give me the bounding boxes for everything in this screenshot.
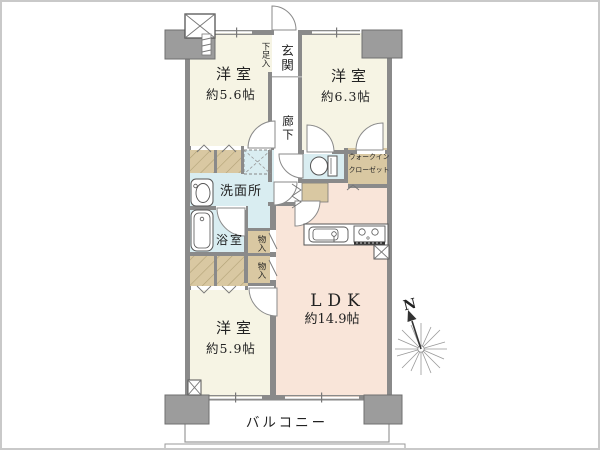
entrance-door-arc [272,6,296,30]
shoe-cabinet-label: 下足入 [258,38,269,72]
bathroom-label: 浴室 [200,234,260,247]
bedroom-bottom-name: 洋室 [188,320,279,337]
ground-line [165,444,405,449]
bedroom-top-left-size: 約5.6帖 [188,88,274,102]
floor-plan-drawing [2,2,600,450]
storage-lower-label: 物入 [255,259,265,281]
storage-upper-label: 物入 [255,232,265,254]
floor-plan: 洋室 約5.6帖 洋室 約6.3帖 玄関 下足入 廊下 洗面所 浴室 物入 物入… [0,0,600,450]
compass-rose [395,310,447,375]
ldk-size: 約14.9帖 [276,313,388,327]
balcony-label: バルコニー [185,416,389,431]
washroom-label: 洗面所 [206,185,276,199]
ldk-floor [274,182,390,397]
column-top-right [362,30,402,58]
walk-in-closet-label-2: クローゼット [348,167,390,174]
entrance-label: 玄関 [279,38,293,78]
bedroom-top-right-size: 約6.3帖 [302,90,390,104]
walk-in-closet-label-1: ウォークイン [348,154,390,161]
kitchen-counter [304,224,388,245]
meter-box-icon [202,34,211,55]
bedroom-bottom-size: 約5.9帖 [188,342,274,356]
ldk-name: LDK [276,292,394,311]
hallway-label: 廊下 [281,110,294,146]
pipe-shaft-bottom-icon [188,380,201,395]
pipe-shaft-kitchen-icon [374,245,389,259]
closet-bottom [188,254,248,286]
north-arrow [408,310,422,349]
hall-side-cabinet [302,183,328,202]
bedroom-top-right-name: 洋室 [302,68,395,85]
toilet-icon [311,156,338,176]
